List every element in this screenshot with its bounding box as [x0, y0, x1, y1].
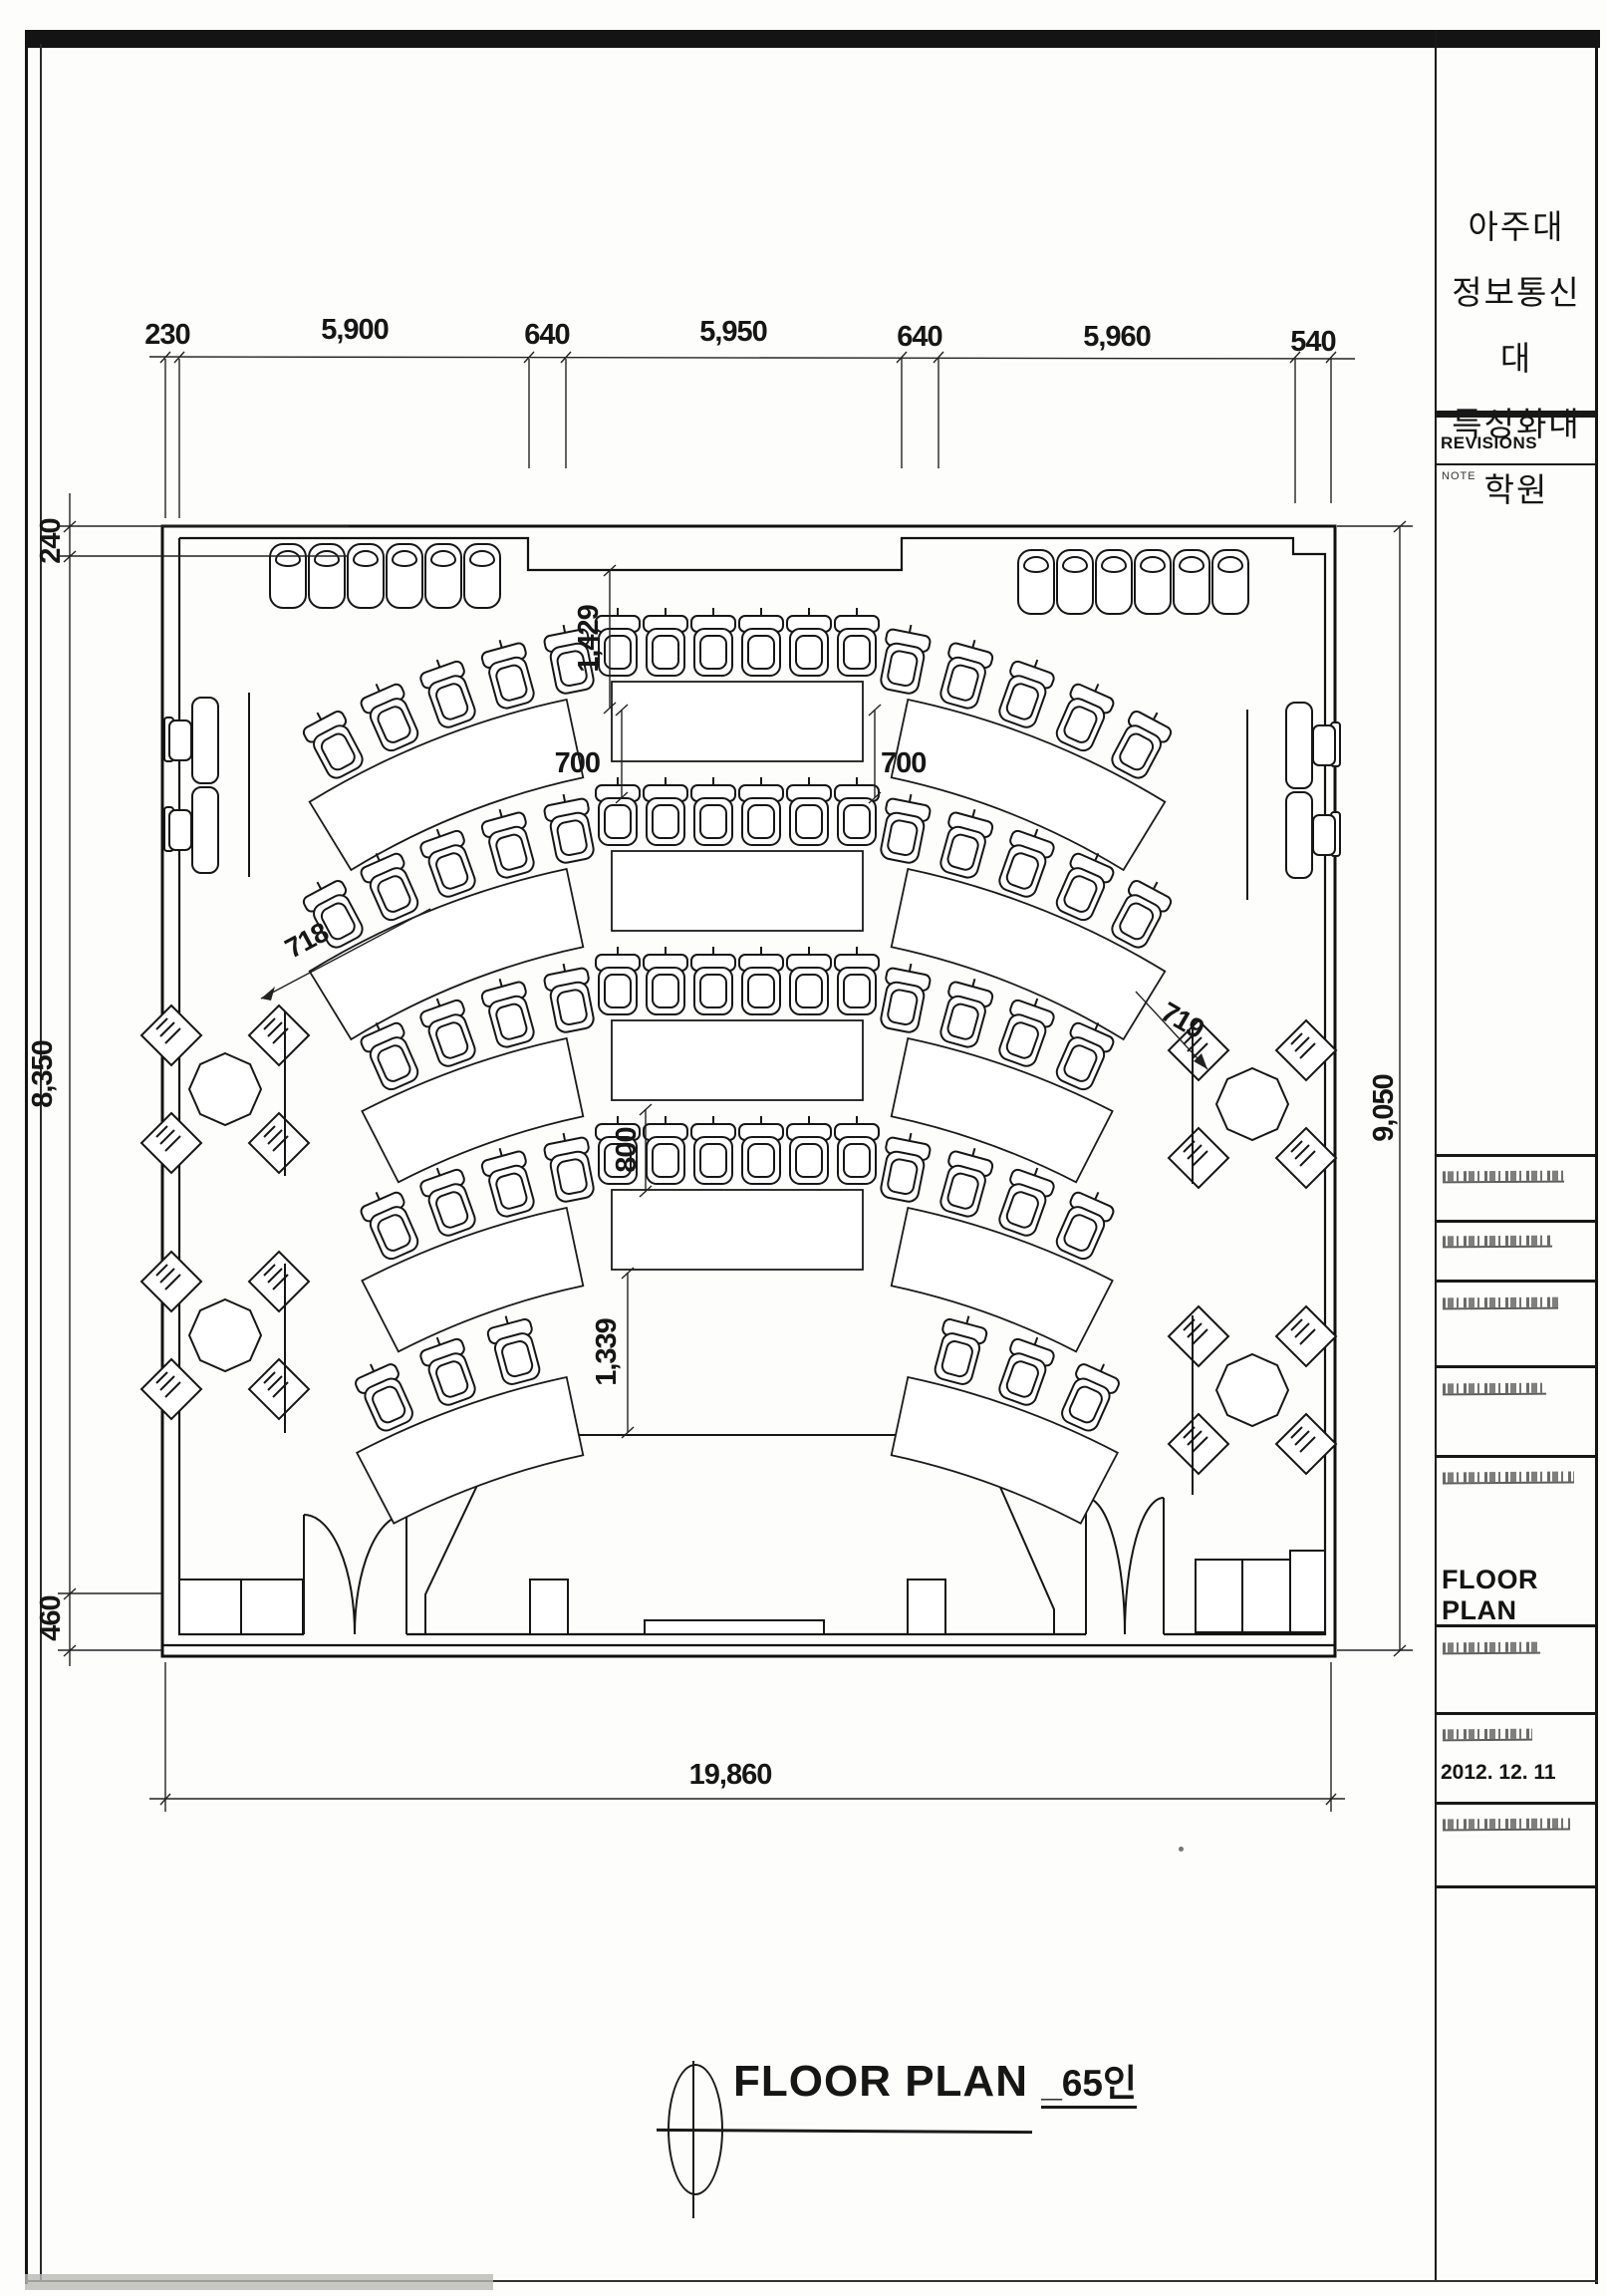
seat-row4-right [936, 1142, 995, 1219]
lounge-chair-top-right [1174, 550, 1209, 614]
title-block-divider [1437, 1365, 1596, 1368]
caption-capacity: _65인 [1041, 2063, 1137, 2109]
dim-right-9050: 9,050 [1368, 1074, 1400, 1142]
seat-row4-left [416, 1161, 480, 1240]
dimension-front-1339: 1,339 [591, 1268, 634, 1438]
cabinet-bottom-right [1196, 1551, 1325, 1632]
illegible-text [1443, 1642, 1540, 1655]
title-block-divider [1437, 1885, 1596, 1888]
left-wall-table-sets [164, 693, 249, 877]
seat-row3-left [416, 992, 480, 1070]
svg-text:800: 800 [611, 1127, 643, 1172]
dim-left-8350: 8,350 [27, 1040, 59, 1108]
seat-row3-center [787, 947, 831, 1014]
desk-center-row-4 [612, 1190, 863, 1270]
seat-row2-right [936, 803, 995, 880]
dimension-chain-left: 240 8,350 460 [27, 493, 349, 1666]
seat-row5-right [994, 1330, 1058, 1409]
desk-center-row-2 [612, 851, 863, 931]
seat-row1-center [739, 608, 783, 676]
sheet-title: FLOOR PLAN [1442, 1565, 1596, 1626]
dimension-ticks [160, 352, 1336, 518]
seat-row4-right [877, 1129, 933, 1204]
dim-top-230: 230 [144, 319, 189, 351]
dimension-chain-top: 230 5,900 640 5,950 640 5,960 540 [144, 314, 1355, 518]
lounge-chair-top-right [1135, 550, 1171, 614]
seat-row3-center [691, 947, 735, 1014]
illegible-text [1443, 1472, 1574, 1485]
seat-row1-left [416, 653, 480, 731]
desk-center-row-1 [612, 682, 863, 761]
title-block-divider [1437, 1455, 1596, 1458]
right-double-door [1086, 1498, 1164, 1634]
seat-row2-right [994, 822, 1058, 901]
lounge-chair-top-left [309, 544, 345, 608]
lounge-chair-top-left [387, 544, 422, 608]
lounge-chair-top-right [1096, 550, 1132, 614]
dimension-row-719: 719 [1136, 992, 1209, 1069]
svg-text:1,429: 1,429 [573, 604, 605, 672]
seat-row4-left [542, 1129, 598, 1204]
caption-label: FLOOR PLAN [733, 2057, 1028, 2106]
seat-row5-left [484, 1310, 544, 1387]
seat-row4-center [691, 1116, 735, 1184]
title-block-divider [1437, 1154, 1596, 1157]
dim-left-240: 240 [35, 518, 67, 563]
theater-seating-area [270, 544, 1248, 1524]
seat-row1-right [936, 634, 995, 711]
svg-text:700: 700 [881, 747, 926, 779]
stage-front-strip [645, 1620, 824, 1634]
lounge-chair-top-right [1212, 550, 1248, 614]
illegible-text [1443, 1729, 1532, 1742]
seat-row2-left [416, 822, 480, 901]
dim-top-5950: 5,950 [699, 316, 767, 348]
seat-row3-right [877, 960, 933, 1034]
dimension-chain-bottom: 19,860 [149, 1662, 1345, 1812]
lounge-chair-top-left [464, 544, 500, 608]
title-block-divider [1437, 411, 1596, 418]
illegible-text [1443, 1236, 1552, 1249]
left-double-door [304, 1515, 406, 1634]
illegible-text [1443, 1383, 1546, 1396]
seat-row1-right [1051, 676, 1119, 755]
lounge-chair-top-left [348, 544, 384, 608]
caption-text: FLOOR PLAN _65인 [733, 2053, 1137, 2107]
note-label: NOTE [1442, 470, 1476, 482]
cabinet-bottom-left [179, 1579, 303, 1634]
stage-column-right [908, 1579, 945, 1634]
illegible-text [1443, 1297, 1558, 1310]
scanned-floor-plan-sheet: 230 5,900 640 5,950 640 5,960 540 240 8,… [0, 0, 1606, 2296]
title-block-divider [1437, 1220, 1596, 1223]
lounge-chair-top-left [425, 544, 461, 608]
seat-row3-center [835, 947, 879, 1014]
floor-plan-drawing: 230 5,900 640 5,950 640 5,960 540 240 8,… [0, 0, 1435, 2296]
illegible-text [1443, 1819, 1570, 1832]
seat-row4-right [1051, 1184, 1119, 1264]
lounge-chair-top-right [1057, 550, 1093, 614]
seat-row4-left [356, 1184, 423, 1264]
seat-row2-center [596, 777, 640, 845]
seat-row2-left [542, 790, 598, 865]
client-line-2: 정보통신대 [1437, 260, 1596, 392]
seat-row1-right [1106, 703, 1177, 783]
seat-row1-right [994, 653, 1058, 731]
revisions-header: REVISIONS [1441, 433, 1537, 453]
seat-row4-center [835, 1116, 879, 1184]
dim-left-460: 460 [35, 1595, 67, 1640]
seat-row3-right [994, 992, 1058, 1070]
seat-row4-left [478, 1142, 538, 1219]
seat-row3-left [542, 960, 598, 1034]
seat-row1-left [478, 634, 538, 711]
dim-top-540: 540 [1290, 326, 1335, 358]
seat-row1-center [691, 608, 735, 676]
seat-row2-center [644, 777, 687, 845]
seat-row5-right [931, 1310, 990, 1387]
lounge-chair-top-left [270, 544, 306, 608]
title-block-divider [1437, 1802, 1596, 1805]
title-block-divider [1437, 463, 1596, 465]
dim-top-5960: 5,960 [1083, 321, 1151, 353]
seat-row3-right [936, 973, 995, 1049]
title-block-divider [1437, 1712, 1596, 1715]
svg-text:700: 700 [555, 747, 600, 779]
title-block-divider [1437, 1624, 1596, 1627]
seat-row2-center [739, 777, 783, 845]
seat-row1-center [644, 608, 687, 676]
dim-top-640a: 640 [524, 319, 569, 351]
seat-row5-left [351, 1355, 418, 1435]
seat-row2-center [787, 777, 831, 845]
title-block-divider [1437, 1280, 1596, 1283]
seat-row3-center [644, 947, 687, 1014]
desk-center-row-3 [612, 1020, 863, 1100]
svg-text:1,339: 1,339 [591, 1317, 623, 1385]
sheet-date: 2012. 12. 11 [1441, 1761, 1556, 1785]
dimension-chain-right: 9,050 [1337, 521, 1413, 1656]
seat-row3-center [739, 947, 783, 1014]
illegible-text [1443, 1171, 1564, 1184]
seat-row4-center [644, 1116, 687, 1184]
seat-row1-right [877, 621, 933, 696]
seat-row2-right [1106, 872, 1177, 953]
stage-column-left [530, 1579, 568, 1634]
seat-row2-center [691, 777, 735, 845]
seat-row1-center [787, 608, 831, 676]
detail-marker-axis [692, 2061, 694, 2218]
seat-row4-center [739, 1116, 783, 1184]
seat-row1-center [835, 608, 879, 676]
dim-top-5900: 5,900 [321, 314, 389, 346]
seat-row5-left [416, 1330, 480, 1409]
seat-row3-center [596, 947, 640, 1014]
right-wall-table-sets [1286, 703, 1340, 878]
seat-row2-left [478, 803, 538, 880]
seat-row1-left [298, 703, 369, 783]
dim-top-640b: 640 [897, 321, 941, 353]
seat-row3-left [478, 973, 538, 1049]
seat-row4-center [787, 1116, 831, 1184]
client-line-1: 아주대 [1437, 194, 1596, 260]
seat-row2-center [835, 777, 879, 845]
lounge-chair-top-right [1018, 550, 1054, 614]
seat-row2-right [877, 790, 933, 865]
title-block: 아주대 정보통신대 특성화대학원 REVISIONS NOTE FLOOR PL… [1435, 30, 1596, 2280]
seat-row1-left [356, 676, 423, 755]
corner-step [1290, 1551, 1325, 1632]
dim-bottom-19860: 19,860 [689, 1759, 772, 1791]
seat-row4-right [994, 1161, 1058, 1240]
seat-row5-right [1056, 1355, 1124, 1435]
